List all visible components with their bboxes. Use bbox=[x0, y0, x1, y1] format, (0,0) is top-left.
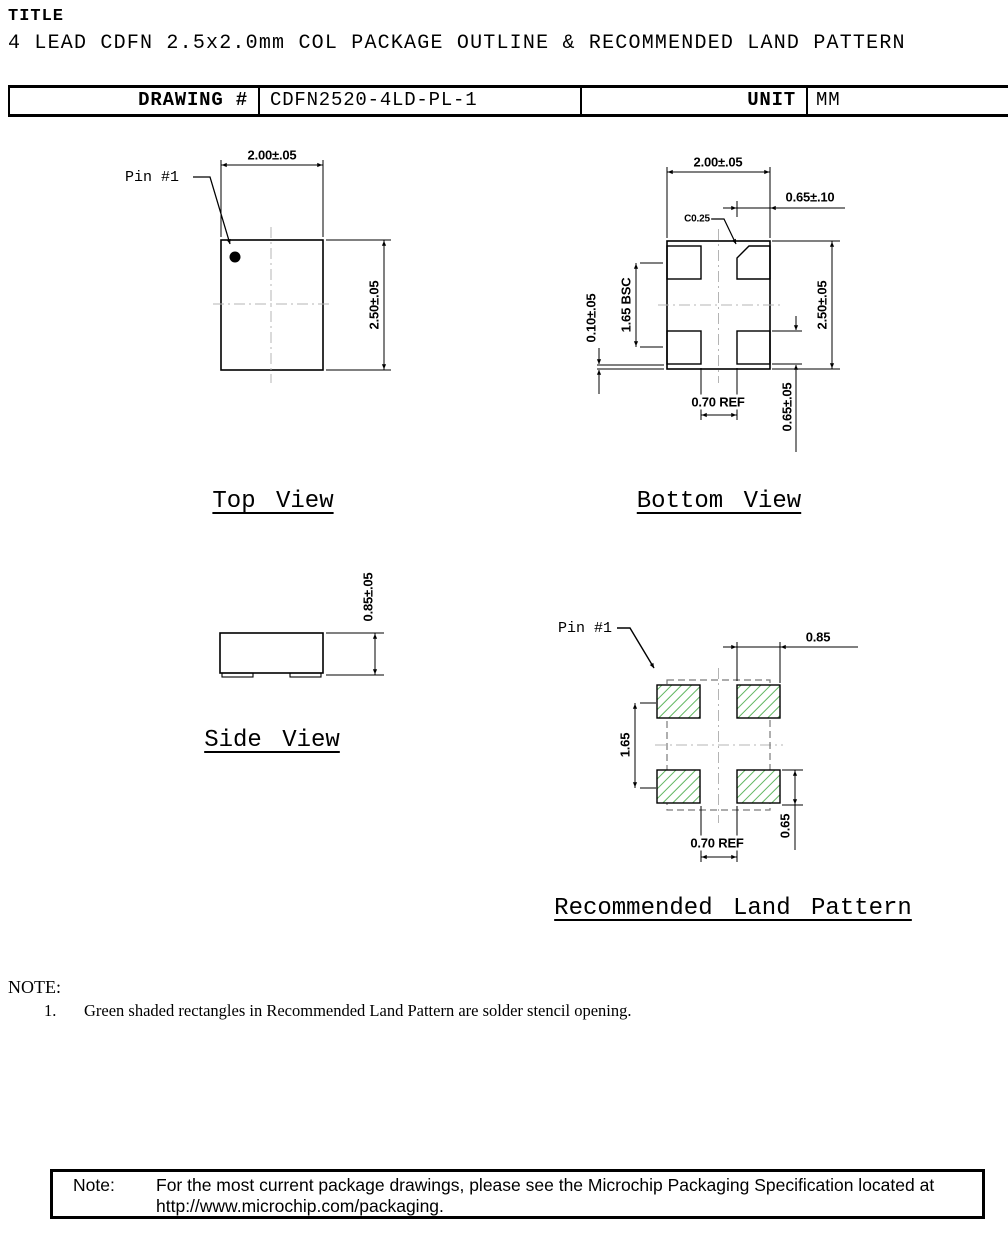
note-item-text: Green shaded rectangles in Recommended L… bbox=[84, 1001, 632, 1021]
land-pad-top-right bbox=[737, 685, 780, 718]
land-dim-pad-width bbox=[723, 642, 858, 683]
land-dim-pitch bbox=[635, 703, 656, 788]
bottom-view-label: Bottom View bbox=[637, 488, 801, 515]
bottom-view-dim-width bbox=[667, 167, 770, 238]
package-drawing-page: TITLE 4 LEAD CDFN 2.5x2.0mm COL PACKAGE … bbox=[0, 0, 1008, 1234]
land-pin1-leader bbox=[617, 628, 654, 668]
drawing-info-table: DRAWING # CDFN2520-4LD-PL-1 UNIT MM bbox=[8, 85, 1008, 117]
bottom-view-dim-gap-text: 0.70 REF bbox=[690, 395, 745, 410]
side-view-label: Side View bbox=[204, 727, 340, 754]
land-dim-gap-text: 0.70 REF bbox=[689, 836, 744, 851]
bottom-view-dim-pad-length-text: 0.65±.05 bbox=[780, 382, 795, 433]
top-view-pin1-label: Pin #1 bbox=[125, 169, 179, 186]
note-heading: NOTE: bbox=[8, 977, 61, 998]
land-pad-bottom-right bbox=[737, 770, 780, 803]
bottom-view-dim-pitch-text: 1.65 BSC bbox=[619, 277, 634, 334]
land-dim-pitch-text: 1.65 bbox=[618, 732, 633, 759]
drawing-number-value: CDFN2520-4LD-PL-1 bbox=[260, 88, 582, 114]
bottom-view-dim-height bbox=[772, 241, 840, 369]
note-item-number: 1. bbox=[44, 1001, 56, 1021]
land-pattern-linework bbox=[617, 628, 858, 862]
land-pad-bottom-left bbox=[657, 770, 700, 803]
drawing-number-label: DRAWING # bbox=[10, 88, 260, 114]
land-dim-pad-height-text: 0.65 bbox=[778, 813, 793, 840]
footer-note-line2: http://www.microchip.com/packaging. bbox=[156, 1196, 982, 1217]
land-pad-top-left bbox=[657, 685, 700, 718]
top-view-label: Top View bbox=[212, 488, 333, 515]
document-title: 4 LEAD CDFN 2.5x2.0mm COL PACKAGE OUTLIN… bbox=[8, 32, 906, 55]
side-view-linework bbox=[220, 633, 384, 677]
side-view-dim-thickness bbox=[326, 633, 384, 675]
land-dim-gap bbox=[701, 806, 737, 862]
side-view-dim-thickness-text: 0.85±.05 bbox=[361, 572, 376, 623]
bottom-view-dim-pullback-text: 0.10±.05 bbox=[584, 293, 599, 344]
land-pattern-label: Recommended Land Pattern bbox=[554, 895, 912, 922]
top-view-linework bbox=[193, 160, 391, 383]
bottom-view-dim-pad-width-text: 0.65±.10 bbox=[785, 190, 836, 205]
footer-note-label: Note: bbox=[53, 1175, 133, 1216]
footer-note-text: For the most current package drawings, p… bbox=[133, 1175, 982, 1216]
title-label: TITLE bbox=[8, 7, 64, 26]
footer-note-box: Note: For the most current package drawi… bbox=[50, 1169, 985, 1219]
bottom-view-dim-width-text: 2.00±.05 bbox=[693, 155, 744, 170]
land-pattern-pads bbox=[657, 685, 780, 803]
chamfer-callout-text: C0.25 bbox=[683, 214, 711, 225]
land-dim-pad-width-text: 0.85 bbox=[805, 630, 832, 645]
pin1-leader bbox=[193, 177, 230, 244]
unit-label: UNIT bbox=[582, 88, 808, 114]
bottom-view-dim-pullback bbox=[597, 348, 664, 394]
pin1-dot bbox=[230, 252, 241, 263]
bottom-view-dim-height-text: 2.50±.05 bbox=[815, 280, 830, 331]
top-view-dim-height-text: 2.50±.05 bbox=[367, 280, 382, 331]
top-view-dim-width-text: 2.00±.05 bbox=[247, 148, 298, 163]
footer-note-line1: For the most current package drawings, p… bbox=[156, 1175, 982, 1196]
side-view-body bbox=[220, 633, 323, 673]
top-view-dim-width bbox=[221, 160, 323, 237]
land-pin1-label: Pin #1 bbox=[558, 620, 612, 637]
unit-value: MM bbox=[808, 88, 1008, 114]
